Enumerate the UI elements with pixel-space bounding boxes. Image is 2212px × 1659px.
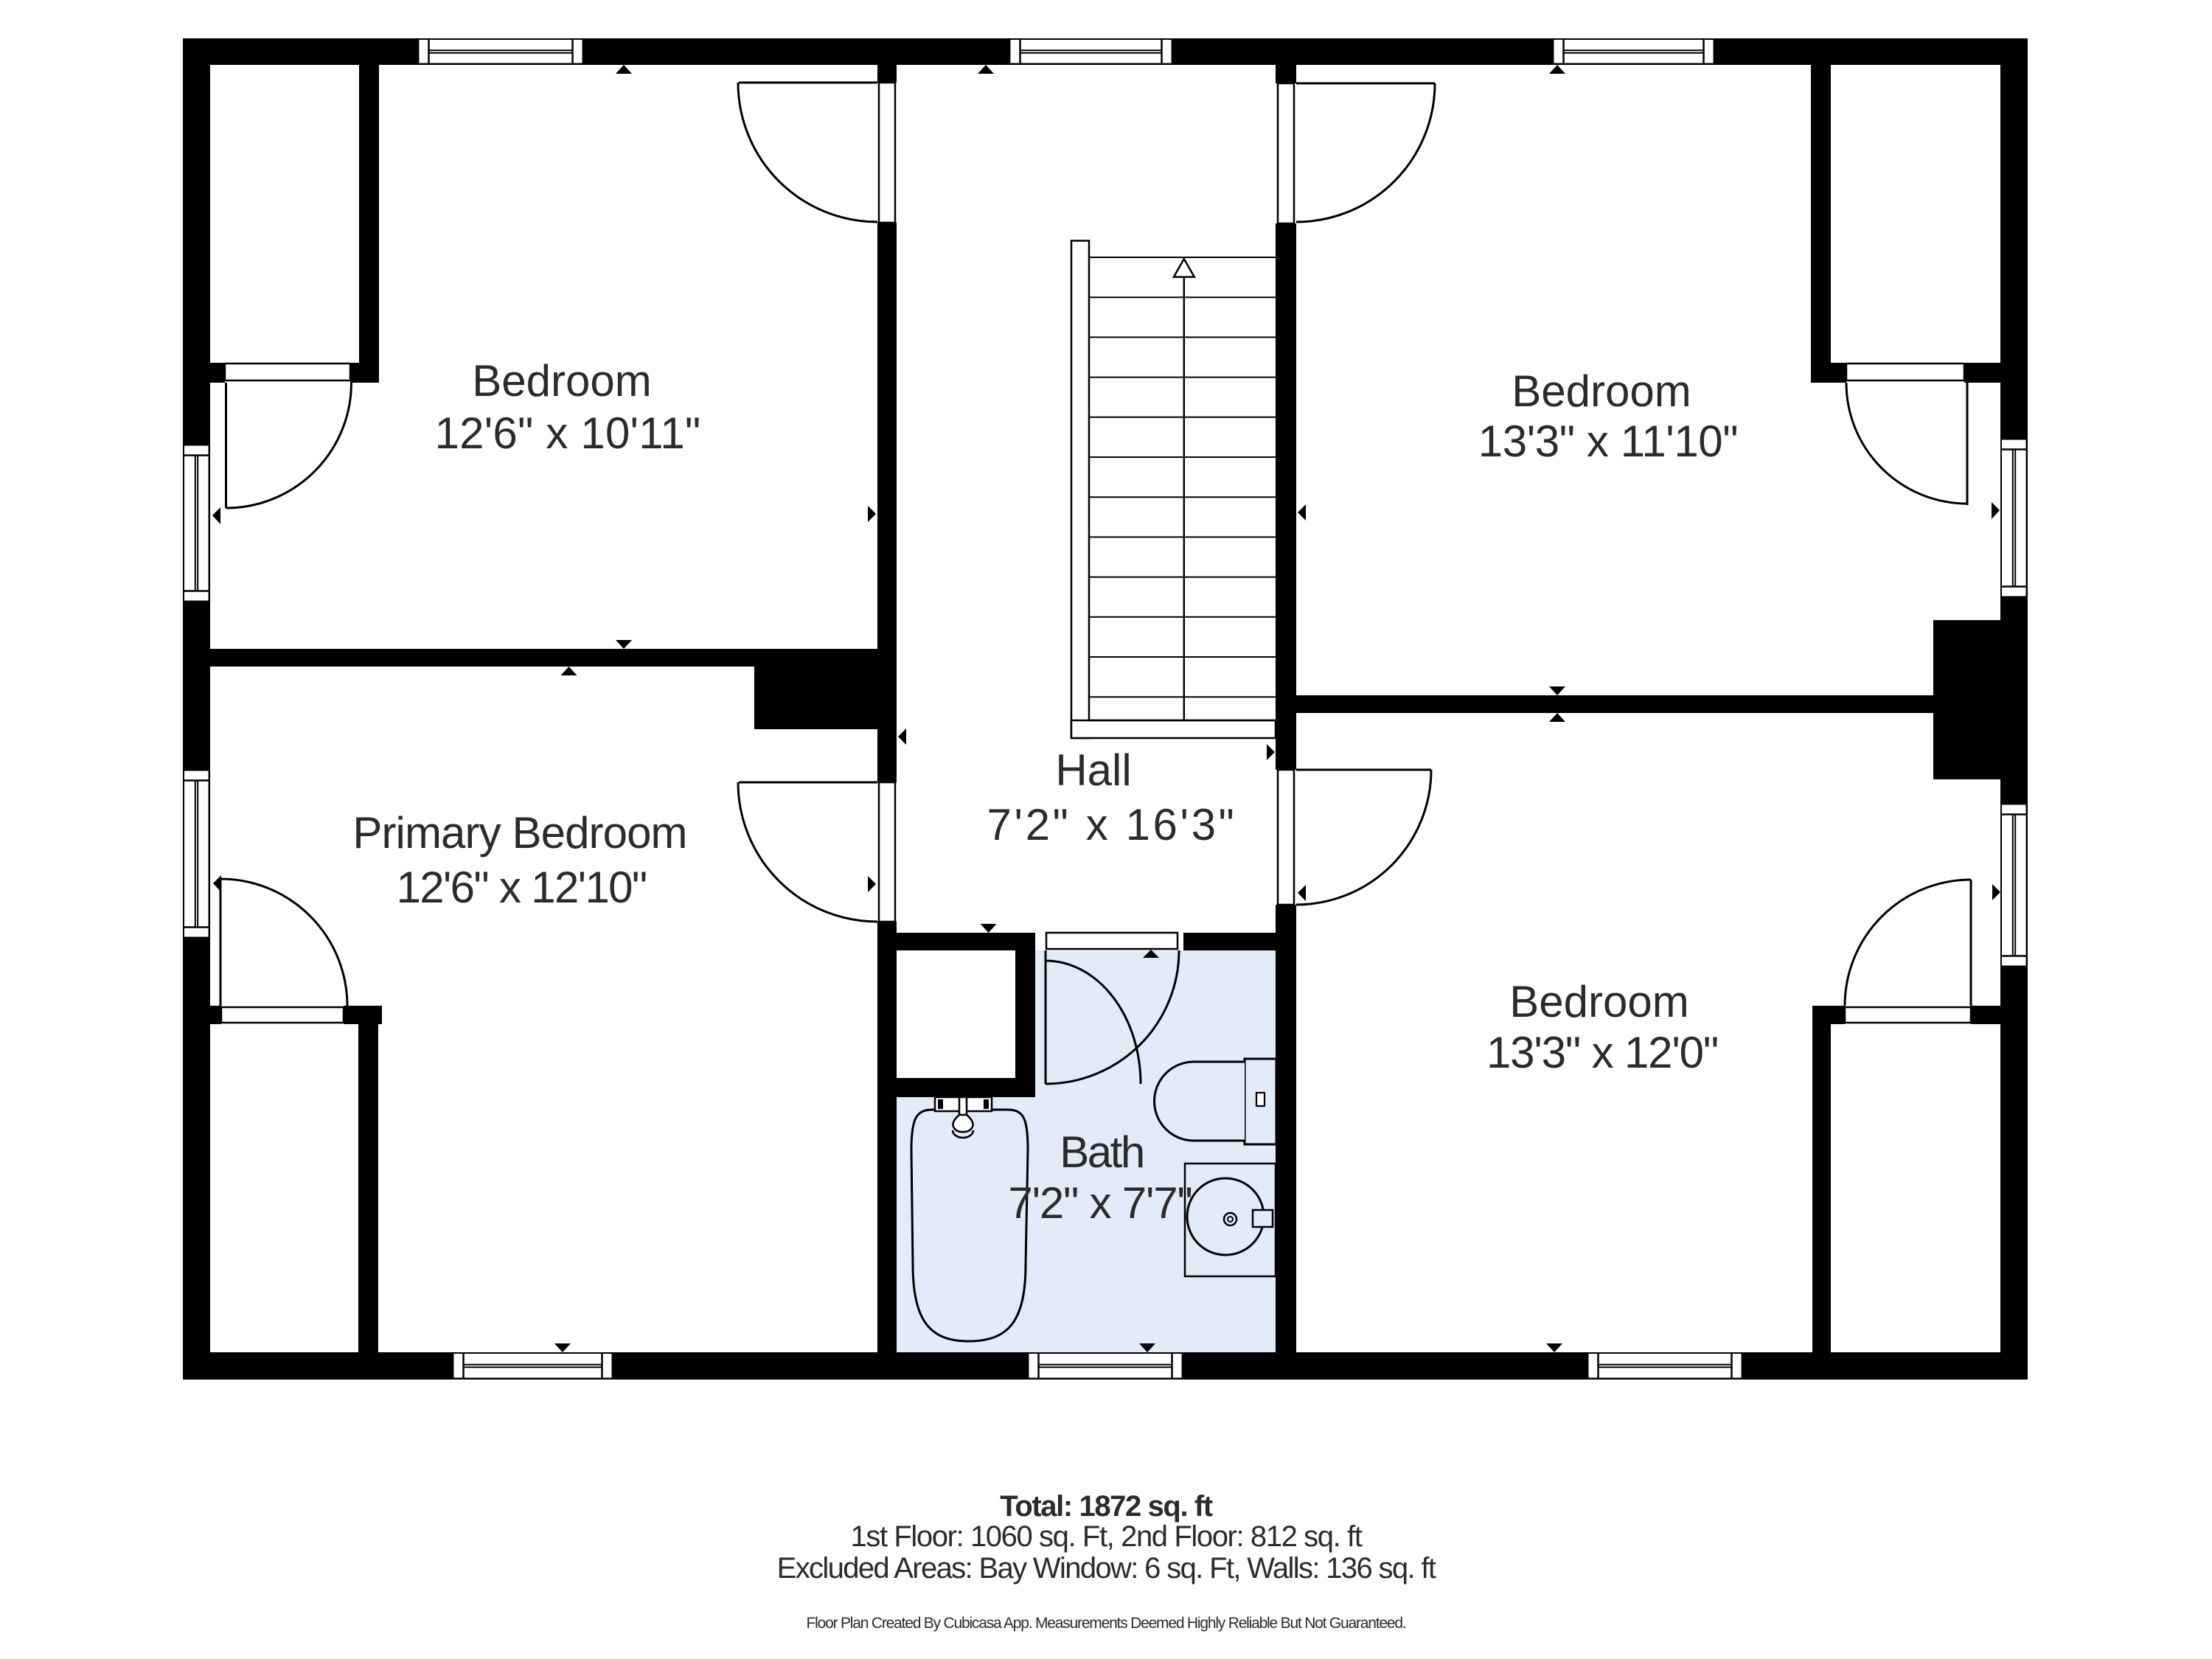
- svg-text:13'3" x 11'10": 13'3" x 11'10": [1478, 417, 1738, 466]
- svg-text:12'6" x 10'11": 12'6" x 10'11": [435, 408, 701, 458]
- svg-text:1st Floor: 1060 sq. Ft, 2nd Fl: 1st Floor: 1060 sq. Ft, 2nd Floor: 812 s…: [851, 1520, 1363, 1553]
- svg-text:7'2" x 16'3": 7'2" x 16'3": [987, 800, 1237, 849]
- svg-text:Hall: Hall: [1055, 745, 1131, 795]
- svg-text:12'6" x 12'10": 12'6" x 12'10": [397, 863, 647, 912]
- svg-text:13'3" x 12'0": 13'3" x 12'0": [1486, 1028, 1718, 1077]
- svg-text:Bedroom: Bedroom: [1512, 366, 1691, 416]
- svg-text:Bedroom: Bedroom: [1509, 977, 1688, 1026]
- svg-text:Total: 1872 sq. ft: Total: 1872 sq. ft: [1000, 1490, 1213, 1523]
- svg-text:7'2" x 7'7": 7'2" x 7'7": [1008, 1178, 1192, 1228]
- svg-text:Bath: Bath: [1060, 1127, 1143, 1177]
- svg-text:Excluded Areas: Bay Window: 6: Excluded Areas: Bay Window: 6 sq. Ft, Wa…: [777, 1552, 1436, 1585]
- svg-text:Primary Bedroom: Primary Bedroom: [352, 808, 686, 858]
- svg-text:Bedroom: Bedroom: [472, 356, 651, 406]
- svg-text:Floor Plan Created By Cubicasa: Floor Plan Created By Cubicasa App. Meas…: [807, 1615, 1406, 1632]
